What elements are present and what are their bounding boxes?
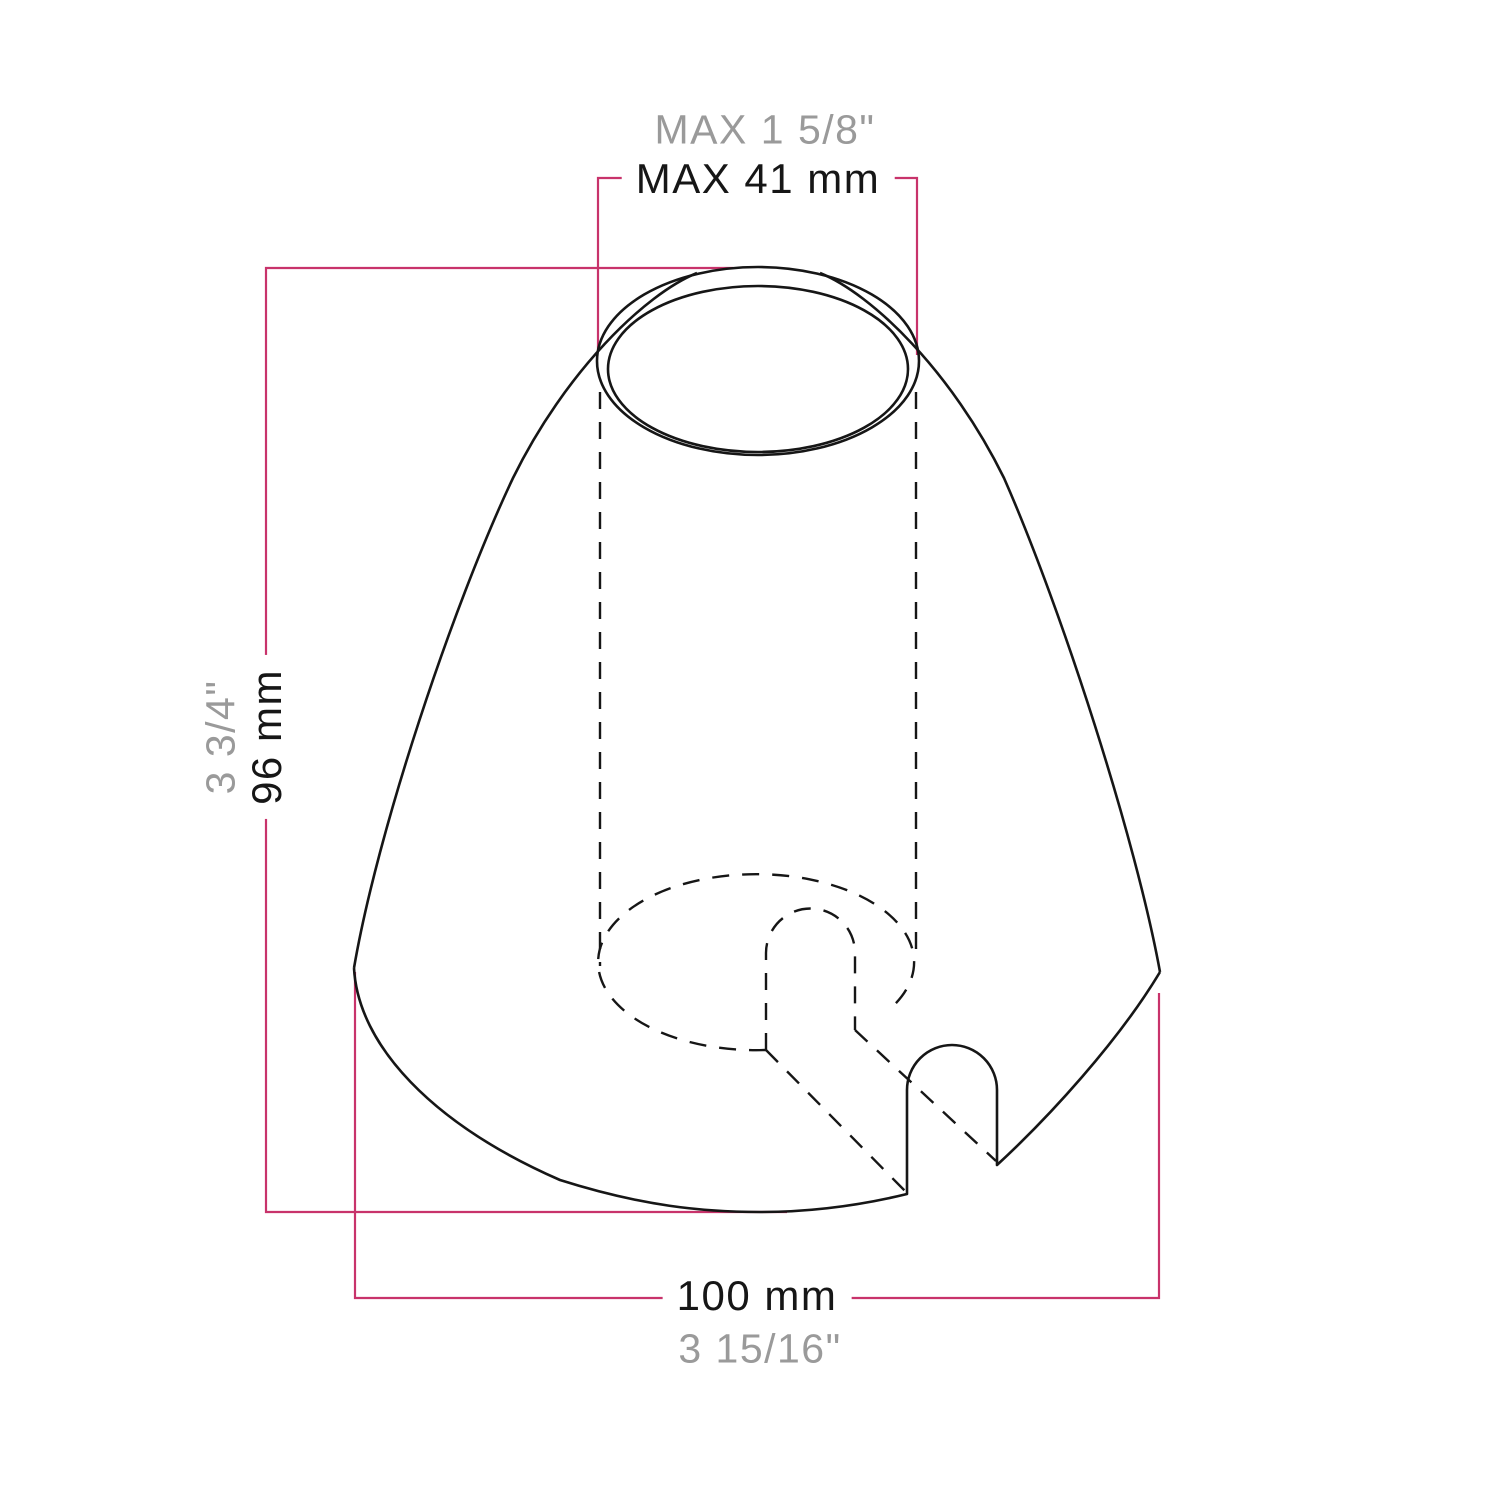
height-metric-label: 96 mm [245, 655, 289, 819]
cone-right-edge [820, 273, 1160, 972]
top-width-imperial-label: MAX 1 5/8" [655, 108, 876, 151]
hidden-edges [598, 392, 996, 1193]
cone-outline [354, 267, 1160, 1212]
slot-left-hidden-edge [766, 1050, 907, 1193]
back-notch-outline [766, 909, 855, 1050]
top-width-metric-label: MAX 41 mm [622, 157, 895, 201]
cone-left-edge [354, 273, 697, 968]
base-width-imperial-label: 3 15/16" [678, 1327, 841, 1370]
dimension-line-height [266, 268, 787, 1212]
cone-bottom-edge-with-notch [354, 968, 1160, 1212]
dimension-lines [266, 178, 1159, 1298]
dimension-drawing-canvas: MAX 1 5/8" MAX 41 mm 3 3/4" 96 mm 100 mm… [0, 0, 1500, 1500]
height-imperial-label: 3 3/4" [199, 680, 242, 795]
base-width-metric-label: 100 mm [663, 1274, 852, 1318]
cylinder-bottom-ellipse [598, 874, 914, 1050]
top-rim-outer-ellipse [597, 267, 919, 455]
top-opening-ellipse [608, 286, 908, 452]
